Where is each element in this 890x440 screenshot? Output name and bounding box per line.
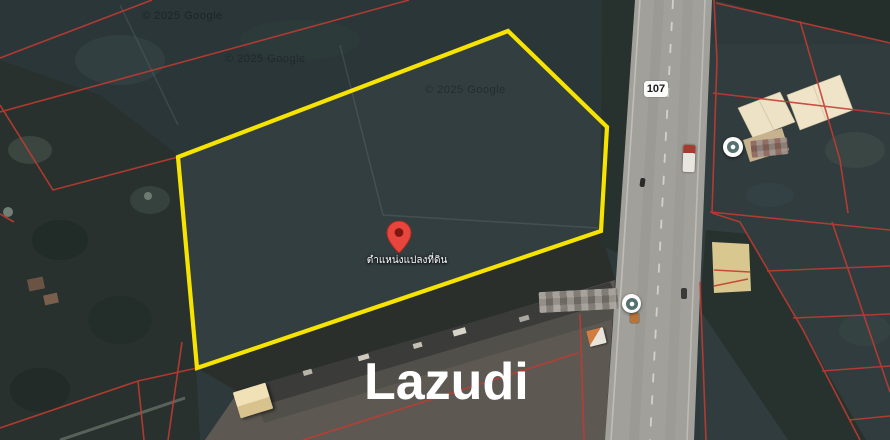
pin-label: ตำแหน่งแปลงที่ดิน	[352, 253, 462, 268]
motorcycle-on-road	[681, 288, 687, 299]
google-copyright: © 2025 Google	[142, 10, 223, 22]
satellite-map[interactable]: © 2025 Google © 2025 Google © 2025 Googl…	[0, 0, 890, 440]
google-copyright: © 2025 Google	[425, 84, 506, 96]
pano-core-icon	[626, 298, 638, 310]
route-number: 107	[647, 83, 665, 95]
cart-on-road	[630, 313, 639, 323]
pano-core-icon	[727, 141, 739, 153]
location-pin-icon[interactable]	[386, 221, 412, 253]
google-copyright: © 2025 Google	[225, 53, 306, 65]
street-view-pano-icon[interactable]	[723, 137, 743, 157]
blurred-place-label	[539, 288, 619, 313]
brand-watermark: Lazudi	[364, 356, 529, 408]
street-view-pano-icon[interactable]	[622, 294, 641, 313]
truck-on-road	[683, 145, 696, 172]
route-badge-107: 107	[644, 81, 668, 97]
